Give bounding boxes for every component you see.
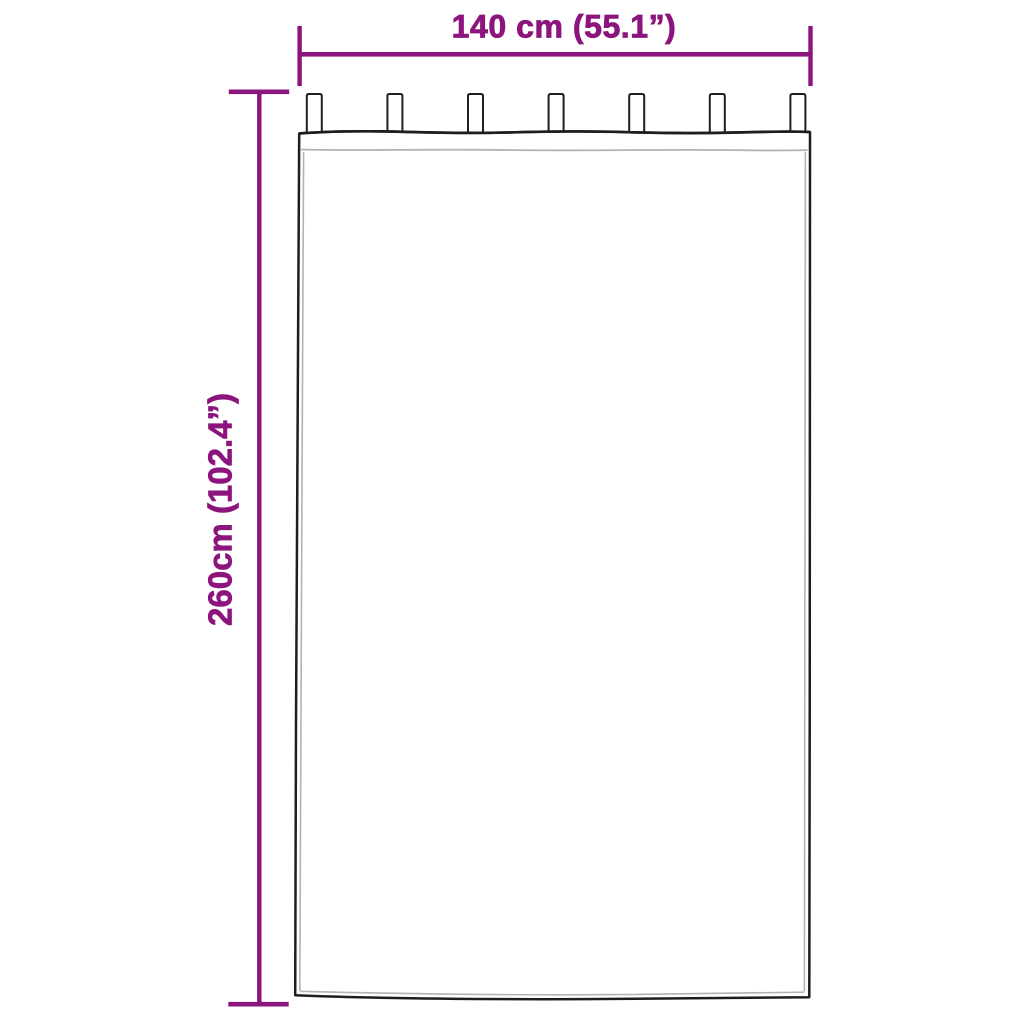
svg-text:260cm (102.4”): 260cm (102.4”): [202, 393, 239, 626]
svg-text:140 cm (55.1”): 140 cm (55.1”): [452, 9, 677, 45]
